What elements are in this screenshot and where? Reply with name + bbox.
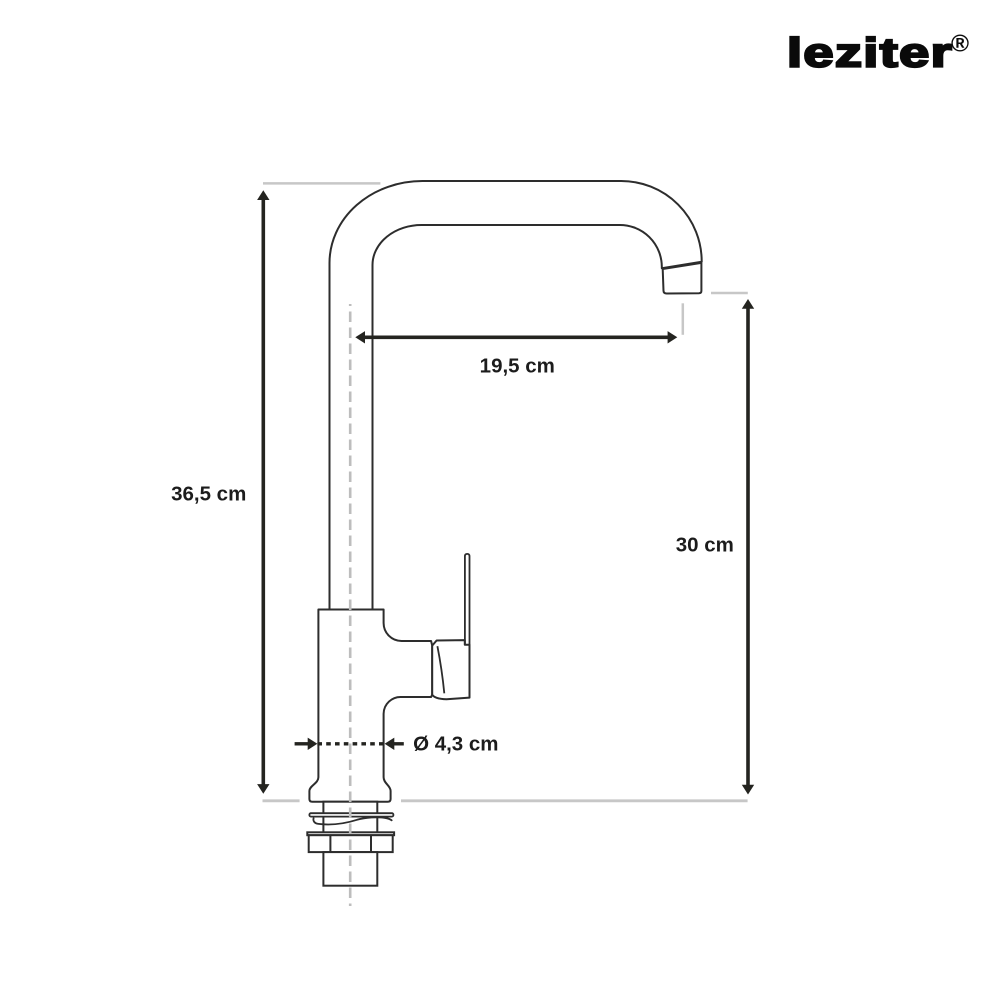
svg-text:leziter: leziter (787, 30, 953, 76)
svg-text:19,5 cm: 19,5 cm (480, 355, 555, 378)
svg-text:30 cm: 30 cm (676, 533, 734, 556)
svg-text:Ø 4,3 cm: Ø 4,3 cm (413, 733, 498, 756)
svg-text:36,5 cm: 36,5 cm (171, 483, 246, 506)
svg-text:®: ® (951, 31, 969, 58)
